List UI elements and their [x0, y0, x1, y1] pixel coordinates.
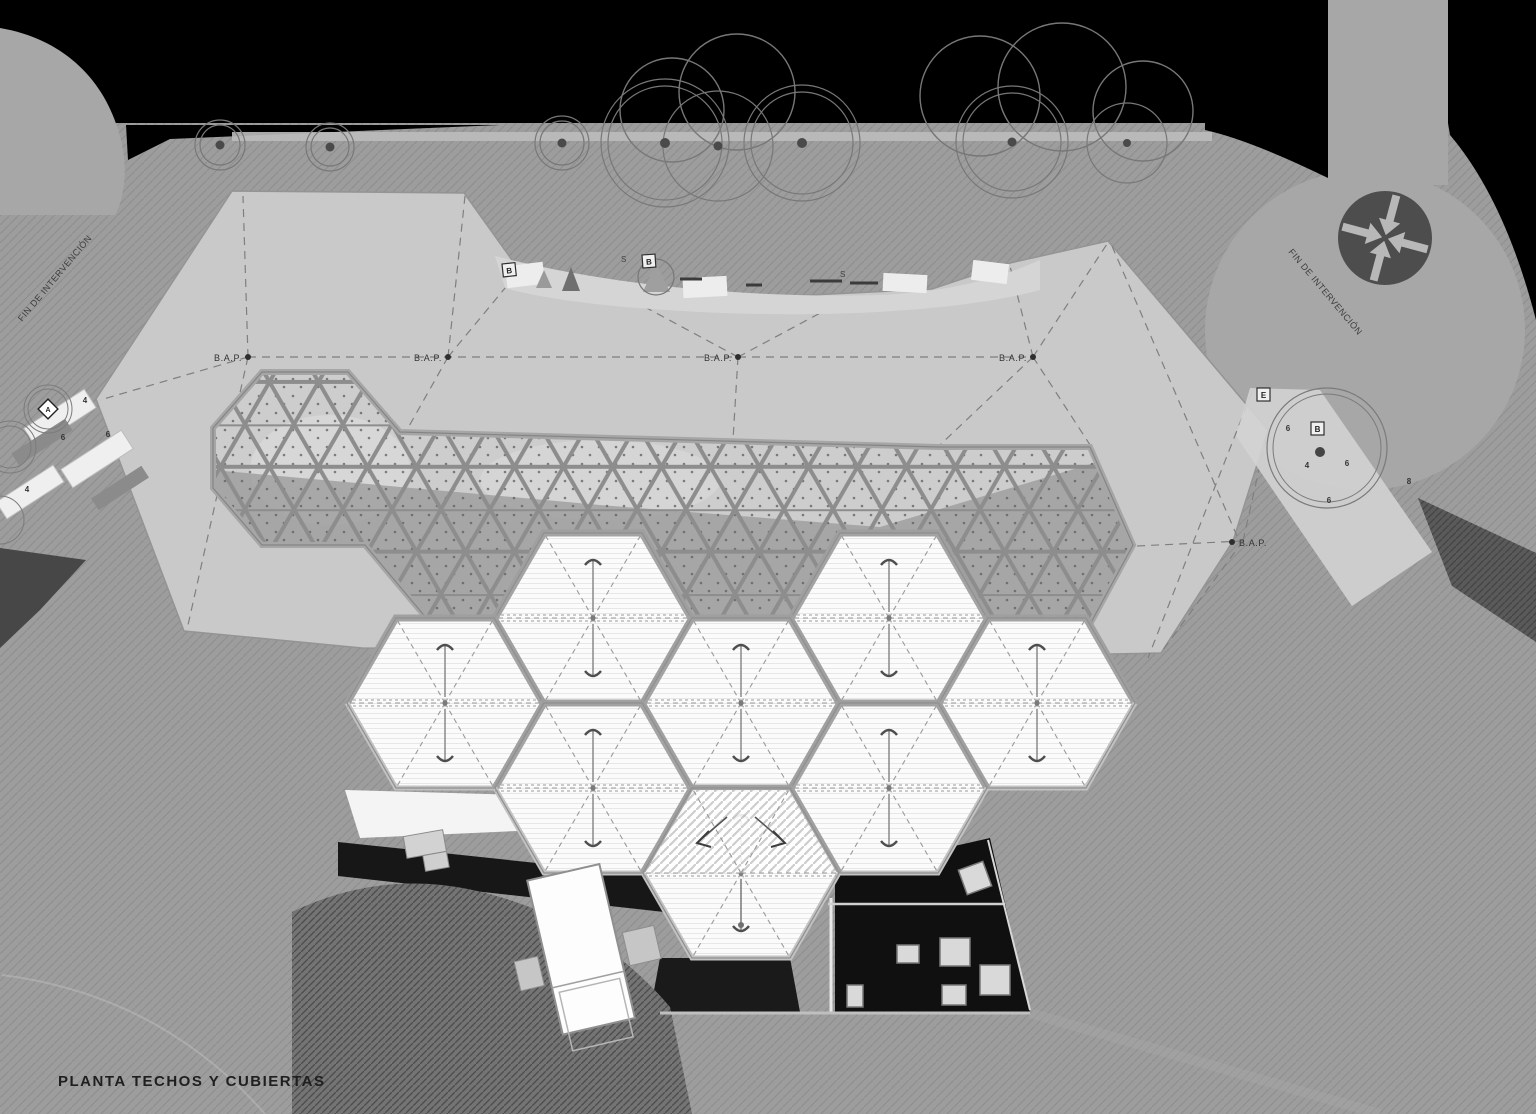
strip-box-b-icon: B [502, 263, 516, 277]
strip-s-label: S [840, 270, 845, 279]
level-number: 6 [1327, 496, 1332, 505]
level-number: 4 [1305, 461, 1310, 470]
convergence-point-icon [1338, 191, 1432, 285]
shadow-under-canopy [650, 958, 800, 1012]
level-number: 4 [25, 485, 30, 494]
architectural-roof-plan: FIN DE INTERVENCIÓN FIN DE INTERVENCIÓN … [0, 0, 1536, 1114]
site-plan-svg: FIN DE INTERVENCIÓN FIN DE INTERVENCIÓN … [0, 0, 1536, 1114]
svg-text:E: E [1261, 391, 1267, 400]
bap-label: B.A.P. [214, 353, 242, 363]
marker-b-icon: B [1311, 422, 1324, 435]
svg-text:B: B [1315, 425, 1321, 434]
level-number: 6 [61, 433, 66, 442]
strip-s-label: S [621, 255, 626, 264]
level-number: 6 [1345, 459, 1350, 468]
strip-box-b-icon: B [642, 254, 656, 268]
drawing-title: PLANTA TECHOS Y CUBIERTAS [58, 1073, 326, 1090]
svg-text:B: B [646, 257, 653, 266]
bap-label: B.A.P. [1239, 538, 1267, 548]
svg-text:B: B [506, 266, 513, 276]
marker-e-icon: E [1257, 388, 1270, 401]
bap-label: B.A.P. [999, 353, 1027, 363]
bap-label: B.A.P. [414, 353, 442, 363]
level-number: 6 [106, 430, 111, 439]
level-number: 6 [1286, 424, 1291, 433]
level-number: 8 [1407, 477, 1412, 486]
marker-a-label: A [45, 407, 50, 414]
bap-label: B.A.P. [704, 353, 732, 363]
level-number: 4 [83, 396, 88, 405]
